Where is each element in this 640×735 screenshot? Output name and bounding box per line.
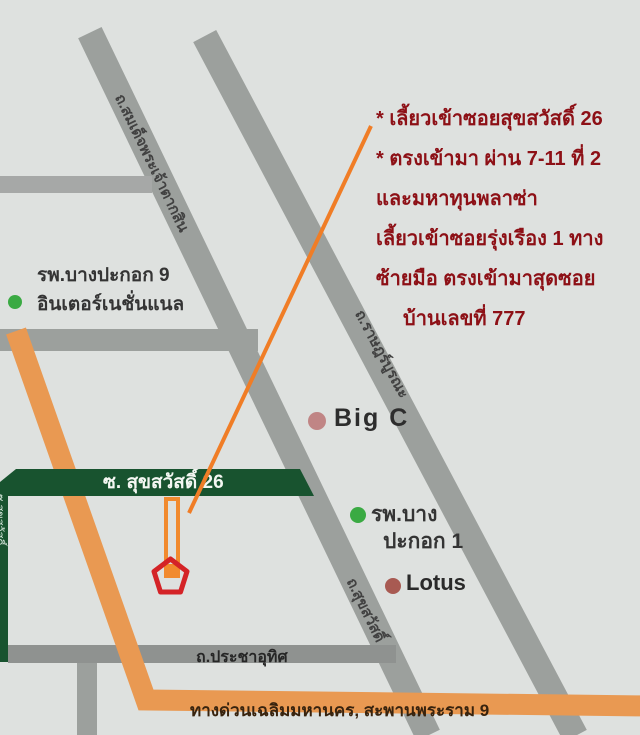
directions-line-2: * ตรงเข้ามา ผ่าน 7-11 ที่ 2: [376, 139, 603, 179]
directions-line-5: ซ้ายมือ ตรงเข้ามาสุดซอย: [376, 259, 603, 299]
directions-line-6: บ้านเลขที่ 777: [376, 299, 603, 339]
directions-line-4: เลี้ยวเข้าซอยรุ่งเรือง 1 ทาง: [376, 219, 603, 259]
map-canvas: ซ. สุขสวัสดิ์ 26 ซ.สุขสวัสดิ์ ถ.สมเด็จพร…: [0, 0, 640, 735]
directions-line-3: และมหาทุนพลาซ่า: [376, 179, 603, 219]
directions-text: * เลี้ยวเข้าซอยสุขสวัสดิ์ 26 * ตรงเข้ามา…: [376, 99, 603, 339]
pointer-line: [189, 126, 371, 513]
house-marker: [154, 559, 187, 592]
directions-line-1: * เลี้ยวเข้าซอยสุขสวัสดิ์ 26: [376, 99, 603, 139]
